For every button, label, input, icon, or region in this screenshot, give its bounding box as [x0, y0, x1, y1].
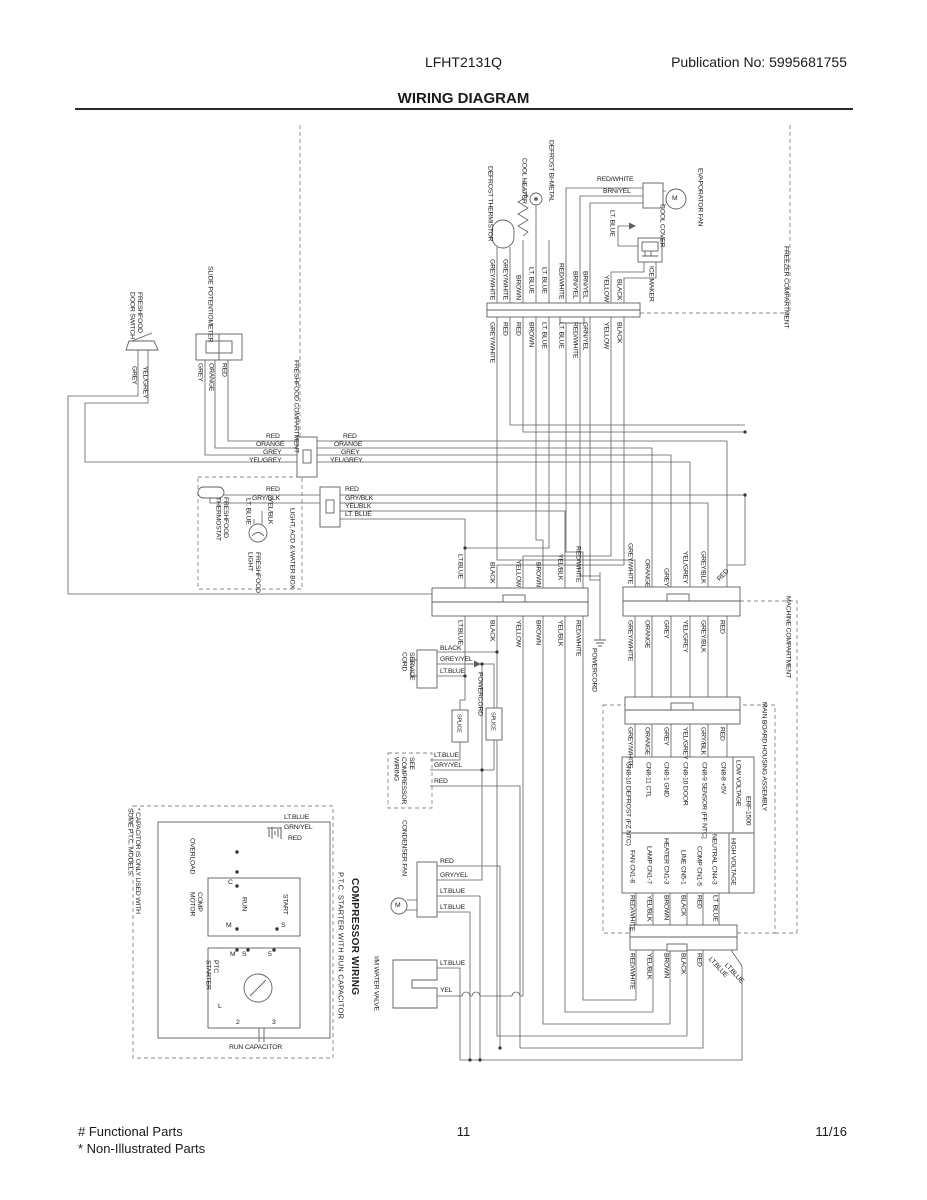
diagram-label: RED/WHITE [574, 620, 582, 656]
diagram-label: RED [718, 727, 726, 741]
diagram-label: EVAPORATOR FAN [696, 168, 704, 226]
diagram-label: BLACK [679, 953, 687, 974]
diagram-label: CN8-11 CTL [644, 762, 652, 798]
diagram-label: RUN [240, 897, 248, 911]
diagram-label: BROWN [534, 620, 542, 645]
diagram-label: LT. BLUE [711, 895, 719, 922]
diagram-label: LT.BLUE [440, 888, 465, 896]
diagram-label: LT.BLUE [456, 554, 464, 579]
diagram-label: RED [501, 322, 509, 336]
diagram-label: LT. BLUE [557, 322, 565, 349]
diagram-label: ORANGE [207, 363, 215, 391]
diagram-label: LINE CN5-1 [679, 850, 687, 885]
diagram-label: BROWN [662, 895, 670, 920]
diagram-label: ORANGE [643, 620, 651, 648]
diagram-label: LT. BLUE [540, 322, 548, 349]
diagram-label: CN8-8 +5V [719, 762, 727, 794]
footer-non-illustrated-parts: * Non-Illustrated Parts [78, 1141, 205, 1156]
diagram-label: YEL/BLK [556, 620, 564, 646]
diagram-label: ORANGE [334, 441, 362, 449]
diagram-label: SERVICE CORD [400, 652, 415, 680]
diagram-label: RED/WHITE [597, 176, 633, 184]
diagram-label: COMP CN1-5 [695, 846, 703, 886]
diagram-label: RED [220, 363, 228, 377]
diagram-label: GRY/YEL [440, 872, 468, 880]
diagram-label: M [226, 922, 231, 930]
diagram-label: FAN CN1-8 [628, 850, 636, 883]
diagram-label: BROWN [534, 562, 542, 587]
diagram-label: FREEZER COMPARTMENT [782, 246, 790, 328]
diagram-label: GREY/WHITE [488, 259, 496, 300]
diagram-label: GREY/WHITE [626, 620, 634, 661]
diagram-label: M [395, 902, 400, 910]
diagram-label: GRY/BLK [345, 495, 373, 503]
diagram-label: LT.BLUE [456, 620, 464, 645]
diagram-label: RED [695, 953, 703, 967]
diagram-label: BROWN [514, 275, 522, 300]
diagram-label: YEL/GREY [681, 551, 689, 583]
diagram-label: RED [440, 858, 454, 866]
diagram-label: LIGHT, ACD & WATER BOX [288, 508, 296, 589]
diagram-label: YEL [440, 987, 452, 995]
diagram-label: POWERCORD [590, 648, 598, 692]
diagram-label: RED/WHITE [557, 263, 565, 299]
diagram-label: HIGH VOLTAGE [729, 838, 737, 886]
diagram-label: BRN/YEL [571, 271, 579, 299]
diagram-label: ORANGE [256, 441, 284, 449]
diagram-label: ERF-1500 [744, 796, 752, 825]
diagram-label: GRY/YEL [434, 762, 462, 770]
diagram-label: RED [434, 778, 448, 786]
diagram-label: POWERCORD [476, 672, 484, 716]
diagram-label: HEATER CN1-3 [662, 838, 670, 884]
diagram-label: PTC STARTER [204, 960, 219, 990]
diagram-label: BLACK [488, 620, 496, 641]
diagram-label: YEL/GREY [330, 457, 362, 465]
wiring-diagram: FRESHFOOD DOOR SWITCHGREYYEL/GREYSLIDE P… [0, 0, 927, 1200]
diagram-label: GREY [130, 366, 138, 384]
diagram-label: RED [266, 486, 280, 494]
diagram-label: DEFROST BI-METAL [547, 140, 555, 202]
diagram-label: LT.BLUE [440, 668, 465, 676]
diagram-label: ORANGE [643, 727, 651, 755]
diagram-label: FRESHFOOD DOOR SWITCH [128, 292, 143, 339]
diagram-label: YEL/GREY [141, 366, 149, 398]
diagram-label: COOL COVER [658, 204, 666, 247]
diagram-label: YELLOW [602, 275, 610, 302]
diagram-label: RED [716, 568, 731, 583]
diagram-label: GRN/YEL [581, 322, 589, 350]
diagram-label: CN8-9 SENSOR (FF NTC) [700, 762, 708, 839]
diagram-label: P.T.C. STARTER WITH RUN CAPACITOR [336, 872, 344, 1019]
diagram-label: GREY/WHITE [501, 259, 509, 300]
diagram-label: YEL/GREY [249, 457, 281, 465]
diagram-label: COMP MOTOR [188, 892, 203, 916]
diagram-label: C [228, 879, 233, 887]
diagram-label: YELLOW [602, 322, 610, 349]
diagram-label: FRESHFOOD THERMOSTAT [214, 497, 229, 541]
diagram-label: S [281, 922, 285, 930]
diagram-label: LT. BLUE [527, 267, 535, 294]
diagram-label: GREY [662, 620, 670, 638]
diagram-label: M [230, 951, 235, 959]
diagram-label: GREY [662, 727, 670, 745]
diagram-label: LAMP CN1-7 [645, 846, 653, 884]
page-number: 11 [0, 1124, 927, 1139]
diagram-label: LT.BLUE [440, 960, 465, 968]
diagram-label: YEL/GREY [681, 620, 689, 652]
diagram-label: * CAPACITOR IS ONLY USED WITH SOME P.T.C… [126, 808, 141, 914]
diagram-label: YEL/BLK [645, 953, 653, 979]
diagram-label: BROWN [662, 953, 670, 978]
diagram-label: YELLOW [514, 620, 522, 647]
diagram-label: COOL HEATER [520, 158, 528, 204]
diagram-label: S [242, 951, 246, 959]
diagram-label: GREY/YEL [440, 656, 472, 664]
diagram-label: GREY [263, 449, 281, 457]
diagram-label: GREY [662, 568, 670, 586]
diagram-label: DEFROST THERMISTOR [486, 166, 494, 241]
diagram-label: 2 [236, 1019, 240, 1027]
diagram-label: SPLICE [489, 712, 495, 731]
diagram-label: SEE COMPRESSOR WIRING [392, 757, 415, 804]
diagram-label: YELLOW [514, 560, 522, 587]
diagram-label: YEL/BLK [556, 554, 564, 580]
diagram-label: OVERLOAD [188, 838, 196, 874]
diagram-label: 3 [272, 1019, 276, 1027]
diagram-label: MAIN BOARD HOUSING ASSEMBLY [760, 702, 768, 811]
diagram-label: GREY/BLK [699, 620, 707, 652]
diagram-label: RED [514, 322, 522, 336]
diagram-label: BLACK [615, 279, 623, 300]
diagram-label: RED/WHITE [574, 546, 582, 582]
diagram-label: NEUTRAL CN4-3 [710, 834, 718, 884]
diagram-label: BLACK [615, 322, 623, 343]
diagram-label: FRESHFOOD LIGHT [246, 552, 261, 593]
diagram-label: RED [695, 895, 703, 909]
footer-date: 11/16 [815, 1124, 847, 1139]
diagram-label: COMPRESSOR WIRING [349, 878, 360, 995]
diagram-label: RED [343, 433, 357, 441]
diagram-label: CN8-10 DEFROST (FZ NTC) [624, 762, 632, 846]
diagram-label: BRN/YEL [603, 188, 631, 196]
diagram-label: ICE MAKER [647, 266, 655, 302]
diagram-label: LT. BLUE [540, 267, 548, 294]
diagram-label: LOW VOLTAGE [734, 760, 742, 806]
diagram-label: CONDENSER FAN [400, 820, 408, 876]
diagram-label: CN8-10 DOOR [681, 762, 689, 806]
diagram-label: RED/WHITE [571, 322, 579, 358]
diagram-label: RED/WHITE [628, 953, 636, 989]
diagram-label: GREY/WHITE [626, 543, 634, 584]
diagram-label: GREY [341, 449, 359, 457]
diagram-label: CN8-1 GND [662, 762, 670, 797]
diagram-label: GREY/WHITE [488, 322, 496, 363]
diagram-label: GRN/YEL [284, 824, 312, 832]
diagram-label: I/M WATER VALVE [372, 956, 380, 1011]
diagram-label: LT.BLUE [284, 814, 309, 822]
diagram-label: YEL/BLK [345, 503, 371, 511]
diagram-label: LT.BLUE [440, 904, 465, 912]
diagram-label: LT. BLUE [345, 511, 372, 519]
diagram-label: GREY/BLK [699, 551, 707, 583]
diagram-label: 5 [268, 951, 272, 959]
diagram-label: ORANGE [643, 559, 651, 587]
diagram-label: RUN CAPACITOR [229, 1044, 282, 1052]
diagram-label: RED [266, 433, 280, 441]
diagram-label: BLACK [488, 562, 496, 583]
diagram-label: START [281, 894, 289, 915]
diagram-label: L [218, 1003, 222, 1011]
diagram-label: YEL/BLK [266, 498, 274, 524]
diagram-label: FRESHFOOD COMPARTMENT [292, 360, 300, 453]
diagram-label: BROWN [527, 322, 535, 347]
diagram-label: RED [345, 486, 359, 494]
diagram-label: MACHINE COMPARTMENT [784, 596, 792, 678]
diagram-label: RED [718, 620, 726, 634]
diagram-label: LT.BLUE [434, 752, 459, 760]
diagram-label: LT. BLUE [244, 498, 252, 525]
diagram-label: LT. BLUE [608, 210, 616, 237]
diagram-label: GREY [196, 363, 204, 381]
diagram-label: BRN/YEL [581, 271, 589, 299]
diagram-label: RED [288, 835, 302, 843]
diagram-label: YEL/GREY [681, 727, 689, 759]
manual-page: LFHT2131Q Publication No: 5995681755 WIR… [0, 0, 927, 1200]
diagram-label: BLACK [440, 645, 461, 653]
diagram-label: GRY/BLK [699, 727, 707, 755]
diagram-label: SLIDE POTENTIOMETER [206, 266, 214, 342]
diagram-label: YEL/BLK [645, 895, 653, 921]
diagram-label: RED/WHITE [628, 895, 636, 931]
diagram-label: SPLICE [455, 714, 461, 733]
diagram-label: M [672, 195, 677, 203]
diagram-label: BLACK [679, 895, 687, 916]
diagram-labels: FRESHFOOD DOOR SWITCHGREYYEL/GREYSLIDE P… [0, 0, 927, 1200]
